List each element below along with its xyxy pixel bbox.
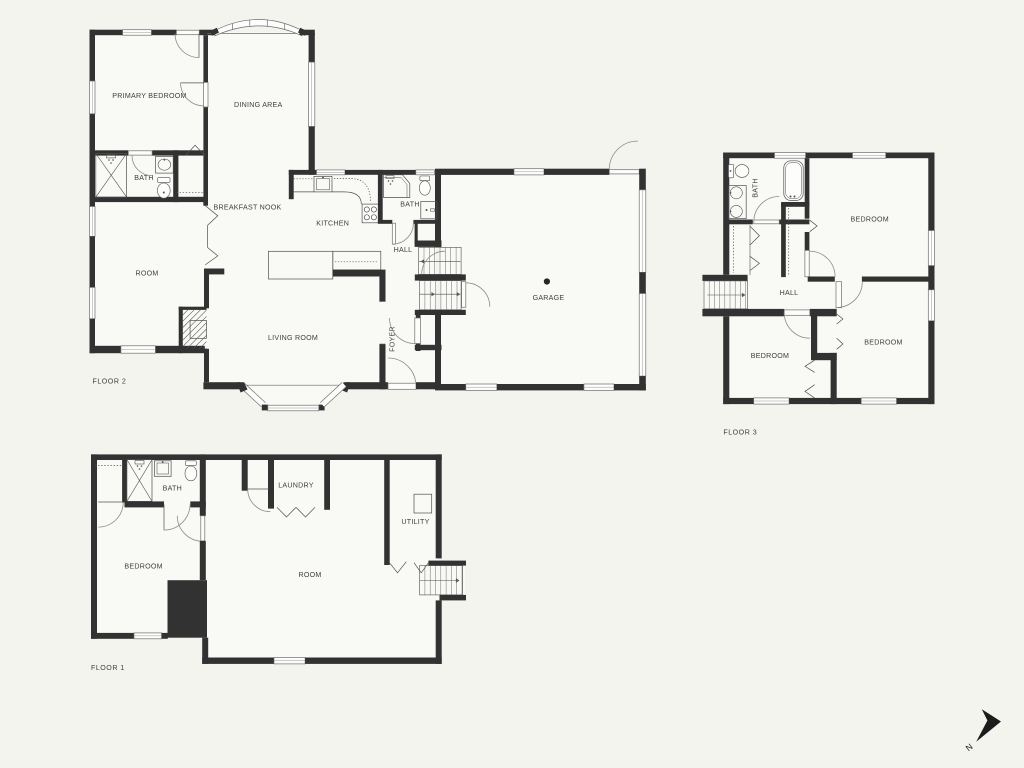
- svg-text:KITCHEN: KITCHEN: [316, 220, 349, 228]
- svg-text:BATH: BATH: [752, 178, 760, 197]
- svg-text:UTILITY: UTILITY: [401, 518, 429, 526]
- svg-text:LAUNDRY: LAUNDRY: [278, 481, 314, 489]
- svg-text:FLOOR 1: FLOOR 1: [91, 664, 125, 672]
- svg-text:BATH: BATH: [163, 484, 182, 492]
- svg-text:BEDROOM: BEDROOM: [124, 563, 162, 571]
- svg-text:BEDROOM: BEDROOM: [864, 339, 902, 347]
- svg-text:GARAGE: GARAGE: [533, 294, 565, 302]
- svg-text:BATH: BATH: [400, 200, 419, 208]
- svg-text:DINING AREA: DINING AREA: [234, 101, 282, 109]
- svg-text:FLOOR 3: FLOOR 3: [723, 429, 757, 437]
- svg-text:BREAKFAST NOOK: BREAKFAST NOOK: [213, 204, 281, 212]
- svg-text:ROOM: ROOM: [298, 571, 321, 579]
- svg-text:ROOM: ROOM: [135, 269, 158, 277]
- svg-text:HALL: HALL: [394, 246, 413, 254]
- svg-text:PRIMARY BEDROOM: PRIMARY BEDROOM: [112, 92, 186, 100]
- svg-text:HALL: HALL: [780, 289, 799, 297]
- svg-text:BEDROOM: BEDROOM: [850, 215, 888, 223]
- svg-text:BEDROOM: BEDROOM: [751, 352, 789, 360]
- svg-text:LIVING ROOM: LIVING ROOM: [268, 334, 318, 342]
- svg-text:FLOOR 2: FLOOR 2: [93, 378, 127, 386]
